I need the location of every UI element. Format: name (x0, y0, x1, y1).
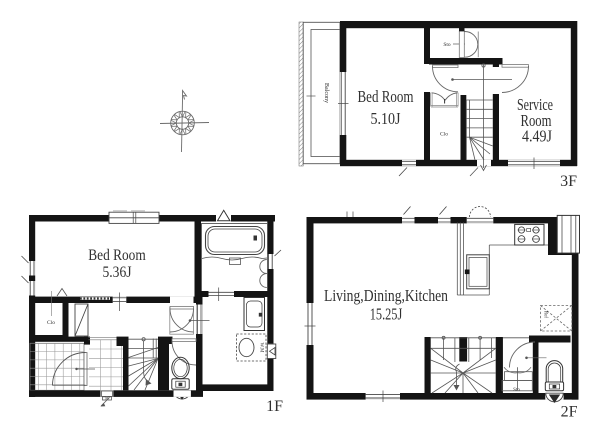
svg-text:Balcony: Balcony (323, 83, 329, 103)
svg-text:Clo: Clo (47, 320, 55, 326)
svg-text:4.49J: 4.49J (522, 127, 552, 146)
svg-text:5.10J: 5.10J (371, 109, 401, 128)
svg-text:1F: 1F (266, 398, 283, 415)
svg-text:5.36J: 5.36J (103, 264, 132, 281)
svg-text:Living,Dining,Kitchen: Living,Dining,Kitchen (324, 286, 448, 305)
svg-text:3F: 3F (560, 173, 577, 190)
svg-text:Ref: Ref (543, 311, 548, 318)
svg-text:W.M: W.M (259, 343, 264, 354)
svg-text:Sto: Sto (513, 388, 520, 393)
svg-text:2F: 2F (561, 404, 578, 421)
svg-text:Bed Room: Bed Room (358, 87, 414, 106)
svg-text:Bed Room: Bed Room (88, 247, 146, 264)
svg-text:Sto: Sto (443, 42, 451, 48)
svg-text:15.25J: 15.25J (370, 305, 403, 324)
svg-text:Clo: Clo (440, 132, 448, 138)
